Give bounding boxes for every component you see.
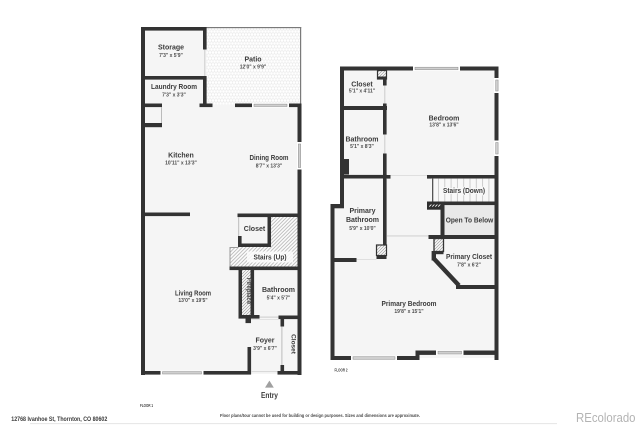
svg-text:8'7" x 13'3": 8'7" x 13'3" — [256, 164, 283, 170]
svg-text:Foyer: Foyer — [255, 338, 274, 345]
svg-text:Stairs (Up): Stairs (Up) — [254, 255, 287, 262]
svg-text:Laundry Room: Laundry Room — [151, 84, 197, 91]
svg-text:Kitchen: Kitchen — [168, 153, 194, 160]
svg-text:Bathroom: Bathroom — [345, 136, 378, 143]
svg-text:7'3" x 3'3": 7'3" x 3'3" — [162, 93, 186, 99]
svg-text:Fireplace: Fireplace — [245, 278, 251, 305]
svg-text:5'1" x 4'11": 5'1" x 4'11" — [349, 88, 376, 94]
svg-text:Floor plans/tour cannot be use: Floor plans/tour cannot be used for buil… — [220, 413, 420, 418]
svg-text:12768 Ivanhoe St, Thornton, CO: 12768 Ivanhoe St, Thornton, CO 80602 — [11, 416, 107, 423]
svg-text:Primary Bedroom: Primary Bedroom — [382, 301, 437, 308]
svg-text:FLOOR 2: FLOOR 2 — [335, 368, 348, 373]
svg-text:Stairs (Down): Stairs (Down) — [443, 188, 485, 195]
svg-text:Primary Closet: Primary Closet — [446, 254, 493, 261]
svg-text:Patio: Patio — [244, 57, 261, 64]
svg-text:REcolorado: REcolorado — [576, 411, 636, 425]
svg-text:5'1" x 8'3": 5'1" x 8'3" — [350, 144, 374, 150]
svg-text:Entry: Entry — [261, 391, 279, 400]
svg-text:Living Room: Living Room — [175, 291, 211, 298]
svg-text:3'9" x 6'7": 3'9" x 6'7" — [253, 346, 277, 352]
svg-text:13'0" x 19'5": 13'0" x 19'5" — [178, 298, 208, 304]
svg-text:7'3" x 5'9": 7'3" x 5'9" — [159, 53, 183, 59]
svg-text:Open To Below: Open To Below — [446, 218, 494, 225]
svg-text:19'8" x 15'1": 19'8" x 15'1" — [394, 309, 424, 315]
svg-text:Closet: Closet — [290, 334, 297, 355]
svg-text:Dining Room: Dining Room — [250, 155, 289, 162]
svg-text:Bathroom: Bathroom — [346, 217, 379, 224]
svg-text:Closet: Closet — [351, 81, 373, 88]
svg-text:Closet: Closet — [244, 226, 266, 233]
svg-text:12'0" x 9'9": 12'0" x 9'9" — [240, 65, 267, 71]
svg-text:FLOOR 1: FLOOR 1 — [140, 403, 153, 408]
svg-text:Primary: Primary — [349, 208, 375, 215]
svg-text:5'4" x 5'7": 5'4" x 5'7" — [267, 296, 291, 302]
svg-text:10'11" x 13'3": 10'11" x 13'3" — [165, 161, 197, 167]
svg-text:Bathroom: Bathroom — [262, 287, 295, 294]
svg-text:5'9" x 10'0": 5'9" x 10'0" — [349, 226, 376, 232]
svg-text:7'8" x 6'2": 7'8" x 6'2" — [457, 263, 481, 269]
svg-text:13'8" x 13'6": 13'8" x 13'6" — [429, 122, 459, 128]
svg-text:Storage: Storage — [158, 45, 184, 52]
